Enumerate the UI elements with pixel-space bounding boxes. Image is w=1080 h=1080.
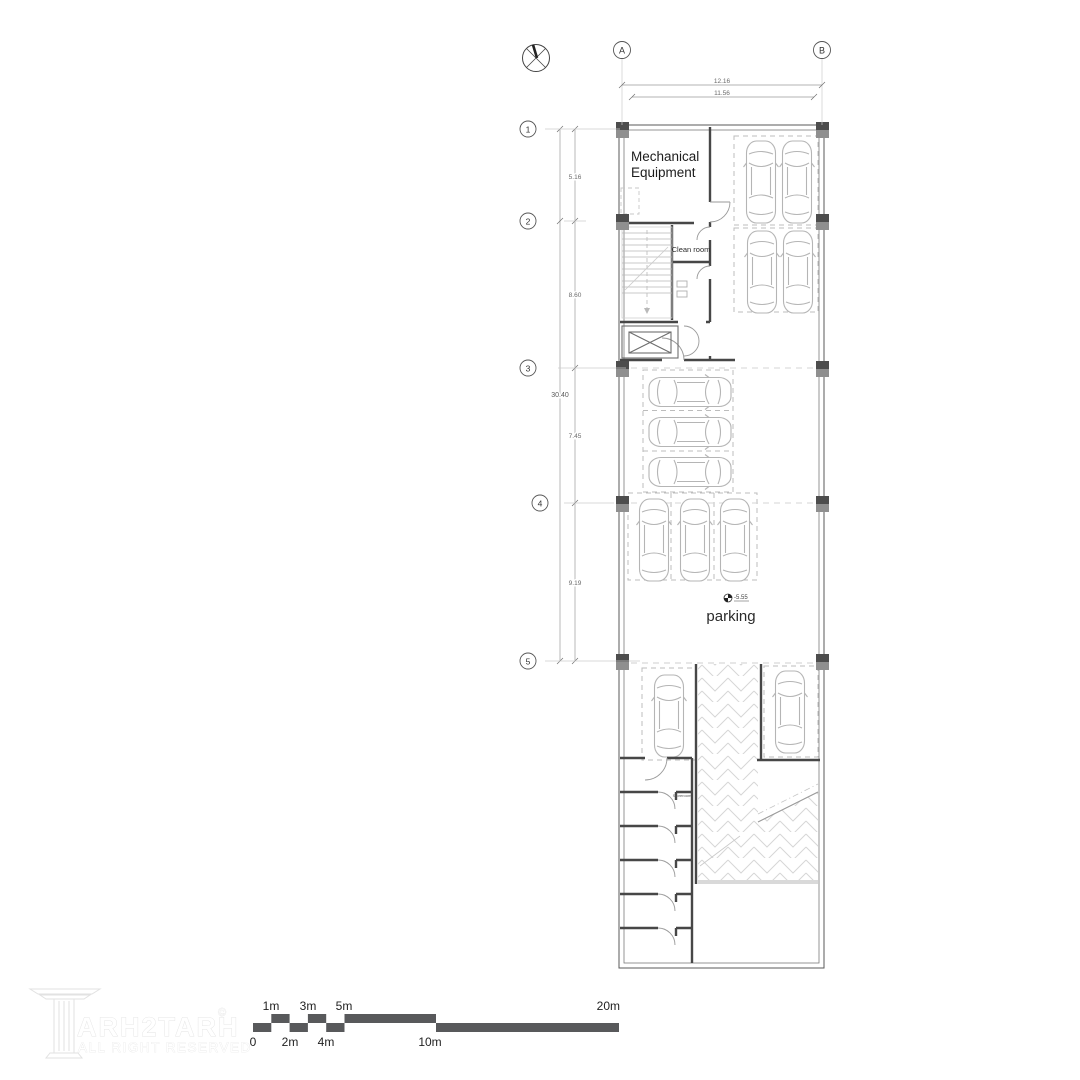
dim-seg-1-2: 5.16 [569,174,582,181]
wc-door [697,266,710,279]
scale-5m: 5m [336,999,353,1013]
scale-20m: 20m [597,999,620,1013]
scale-bar: 0 1m 2m 3m 4m 5m 10m 20m [250,999,620,1049]
scale-2m: 2m [282,1035,299,1049]
mechanical-door [710,202,730,222]
car-icon [649,375,731,410]
grid-bubble-4: 4 [538,499,543,509]
dim-seg-2-3: 8.60 [569,292,582,299]
car-icon [744,141,779,223]
parking-label: parking [706,608,755,625]
floor-plan-page: Mechanical Equipment Clean room parking … [0,0,1080,1080]
floor-plan-canvas: Mechanical Equipment Clean room parking … [0,0,1080,1080]
mechanical-equipment-label-line1: Mechanical [631,149,699,164]
grid-bubble-1: 1 [526,125,531,135]
car-icon [781,231,816,313]
dim-top-outer: 12.16 [714,78,731,85]
car-icon [745,231,780,313]
clean-room-door [697,227,710,240]
scale-10m: 10m [418,1035,441,1049]
car-icon [718,499,753,581]
scale-4m: 4m [318,1035,335,1049]
watermark: ARH2TARH © ALL RIGHT RESERVED [30,989,252,1058]
elevation-value: -5.55 [734,595,748,601]
wc-fixtures [677,281,687,297]
stair-direction-arrow [644,308,650,314]
elevator-lobby-door [684,326,699,356]
car-icon [773,671,808,753]
clean-room-label: Clean room [672,245,711,254]
car-icon [780,141,815,223]
mechanical-equipment-label-line2: Equipment [631,165,696,180]
watermark-brand: ARH2TARH [77,1012,240,1042]
scale-3m: 3m [300,999,317,1013]
watermark-copyright: © [218,1007,226,1019]
elevator [622,326,678,358]
grid-bubble-5: 5 [526,657,531,667]
core-door [662,338,684,360]
car-icon [652,675,687,757]
dim-left-total: 30.40 [551,392,569,399]
dim-seg-3-4: 7.45 [569,433,582,440]
grid-bubble-3: 3 [526,364,531,374]
car-icon [649,455,731,490]
storeroom-corridor-door [645,758,667,780]
grid-bubble-a: A [619,46,625,56]
stair [622,227,672,318]
scale-1m: 1m [263,999,280,1013]
elevation-marker: -5.55 [724,594,749,602]
dim-seg-4-5: 9.19 [569,580,582,587]
car-icon [637,499,672,581]
grid-bubble-2: 2 [526,217,531,227]
car-icon [649,415,731,450]
watermark-tagline: ALL RIGHT RESERVED [78,1040,252,1055]
storeroom-label: Storeroom [673,793,692,798]
dim-top-inner: 11.56 [714,90,730,97]
ramp-end-band [698,880,818,884]
grid-bubble-b: B [819,46,825,56]
north-arrow-icon [523,45,550,72]
car-icon [678,499,713,581]
storeroom-doors [658,792,675,945]
